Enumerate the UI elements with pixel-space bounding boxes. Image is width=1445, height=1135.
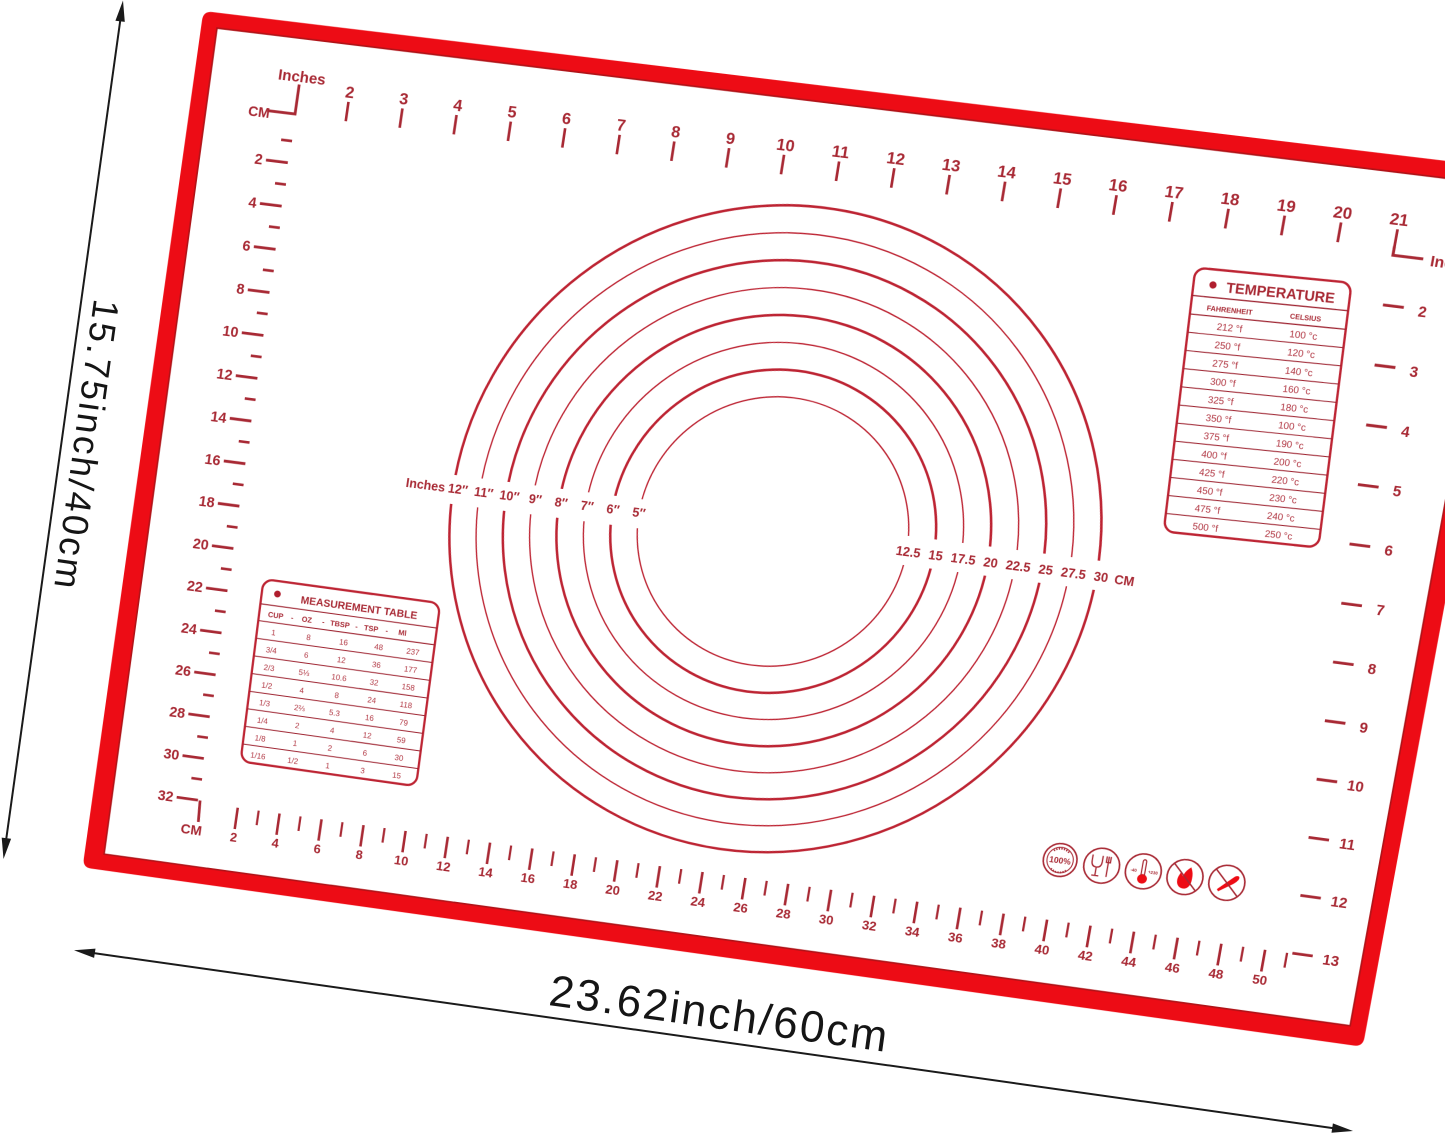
svg-text:15.75inch/40cm: 15.75inch/40cm bbox=[46, 297, 127, 594]
svg-text:23.62inch/60cm: 23.62inch/60cm bbox=[546, 966, 892, 1062]
